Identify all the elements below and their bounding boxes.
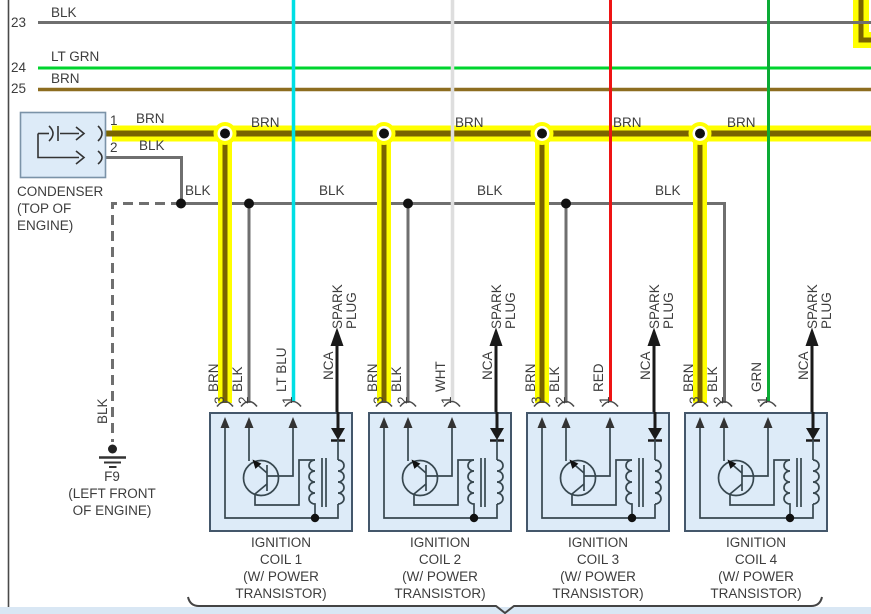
coil3-caption: TRANSISTOR)	[518, 587, 678, 601]
coil3-wire3-label: BRN	[524, 363, 538, 392]
condenser-pin2-wire: BLK	[139, 139, 165, 153]
coil2-spark-label: SPARK	[490, 284, 504, 329]
coil2-wire1-label: WHT	[434, 361, 448, 392]
blk-line-label: BLK	[185, 184, 211, 198]
coil1-caption: (W/ POWER	[201, 570, 361, 584]
coil4-pin1: 1	[756, 396, 770, 404]
coil4-wire1-label: GRN	[750, 362, 764, 392]
condenser-box	[21, 113, 106, 178]
coil3-wire2-label: BLK	[548, 366, 562, 392]
ground-wire-label: BLK	[96, 398, 110, 424]
wire-brn-drops	[225, 127, 700, 403]
blk-line-label: BLK	[655, 184, 681, 198]
coil2-plug-label: PLUG	[504, 292, 518, 329]
coil3-plug-label: PLUG	[662, 292, 676, 329]
coil3-caption: COIL 3	[518, 553, 678, 567]
coil1-plug-label: PLUG	[345, 292, 359, 329]
wire-23-number: 23	[11, 16, 26, 30]
ignition-wiring-diagram: 23 BLK 24 LT GRN 25 BRN BRN BRN BRN BRN …	[0, 0, 871, 614]
bus-label: BRN	[727, 116, 756, 130]
coil3-caption: IGNITION	[518, 536, 678, 550]
coil4-wire3-label: BRN	[682, 363, 696, 392]
coil4-caption: (W/ POWER	[676, 570, 836, 584]
coil4-spark-label: SPARK	[806, 284, 820, 329]
blk-line-label: BLK	[319, 184, 345, 198]
coil4-pin2: 2	[712, 396, 726, 404]
coil2-wire2-label: BLK	[390, 366, 404, 392]
coil4-caption: IGNITION	[676, 536, 836, 550]
coil4-caption: COIL 4	[676, 553, 836, 567]
coil1-spark-label: SPARK	[331, 284, 345, 329]
coil1-nca-label: NCA	[322, 351, 336, 380]
bottom-strip	[0, 607, 871, 614]
coil2-pin2: 2	[396, 396, 410, 404]
coil2-pin3: 3	[372, 396, 386, 404]
coil4-nca-label: NCA	[797, 351, 811, 380]
bus-label: BRN	[251, 116, 280, 130]
condenser-location: (TOP OF	[17, 202, 71, 216]
coil1-wire3-label: BRN	[207, 363, 221, 392]
coil3-pin2: 2	[554, 396, 568, 404]
blk-line-label: BLK	[477, 184, 503, 198]
coil1-caption: COIL 1	[201, 553, 361, 567]
condenser-location: ENGINE)	[17, 219, 73, 233]
coil3-caption: (W/ POWER	[518, 570, 678, 584]
coil2-pin1: 1	[440, 396, 454, 404]
coil2-nca-label: NCA	[481, 351, 495, 380]
coil4-caption: TRANSISTOR)	[676, 587, 836, 601]
coil3-wire1-label: RED	[592, 363, 606, 392]
bus-label: BRN	[455, 116, 484, 130]
ignition-coil-2-box	[369, 412, 511, 531]
ignition-coil-1-box	[210, 412, 352, 531]
coil3-spark-label: SPARK	[648, 284, 662, 329]
coil1-pin2: 2	[237, 396, 251, 404]
ignition-coil-4-box	[685, 412, 827, 531]
wire-blk-dashed-ground	[113, 204, 182, 443]
coil4-wire2-label: BLK	[706, 366, 720, 392]
ignition-coil-3-box	[527, 412, 669, 531]
condenser-pin1: 1	[110, 114, 118, 128]
condenser-pin2: 2	[110, 141, 118, 155]
coil1-wire1-label: LT BLU	[275, 347, 289, 392]
coil4-plug-label: PLUG	[820, 292, 834, 329]
coil3-pin3: 3	[530, 396, 544, 404]
coil4-pin3: 3	[688, 396, 702, 404]
wire-25-number: 25	[11, 82, 26, 96]
coil2-caption: COIL 2	[360, 553, 520, 567]
condenser-pin1-wire: BRN	[136, 112, 165, 126]
coil1-pin1: 1	[281, 396, 295, 404]
coil1-wire2-label: BLK	[231, 366, 245, 392]
coil2-caption: IGNITION	[360, 536, 520, 550]
coil2-caption: TRANSISTOR)	[360, 587, 520, 601]
wire-25-label: BRN	[51, 72, 80, 86]
coil2-wire3-label: BRN	[366, 363, 380, 392]
condenser-name: CONDENSER	[17, 185, 103, 199]
wire-24-number: 24	[11, 61, 26, 75]
wire-23-label: BLK	[51, 6, 77, 20]
coil1-caption: IGNITION	[201, 536, 361, 550]
coil2-caption: (W/ POWER	[360, 570, 520, 584]
wire-brn-elbow	[861, 0, 871, 40]
coil1-caption: TRANSISTOR)	[201, 587, 361, 601]
bus-label: BRN	[613, 116, 642, 130]
ground-id: F9	[32, 470, 192, 484]
ground-location: OF ENGINE)	[32, 504, 192, 518]
wire-condenser-blk	[106, 158, 182, 204]
coil3-pin1: 1	[598, 396, 612, 404]
coil3-nca-label: NCA	[639, 351, 653, 380]
ground-location: (LEFT FRONT	[32, 487, 192, 501]
coil1-pin3: 3	[213, 396, 227, 404]
diagram-linework	[0, 0, 871, 614]
ground-symbol	[99, 445, 126, 468]
wire-24-label: LT GRN	[51, 50, 99, 64]
